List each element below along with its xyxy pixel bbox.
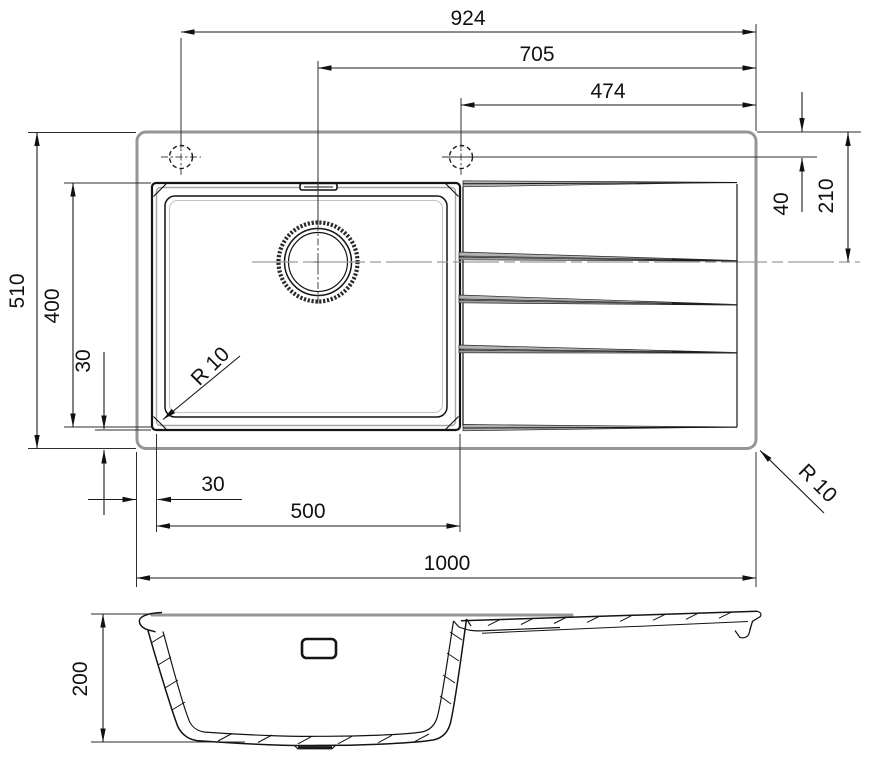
dim-1000-label: 1000 [424,552,471,575]
dim-40-label: 40 [770,192,793,215]
dim-210-label: 210 [815,178,838,213]
dim-400: 400 [41,183,73,427]
dim-1000: 1000 [137,552,757,578]
radius-callout-corner-label: R 10 [794,460,842,508]
dim-30-bottom: 30 [88,473,242,500]
dim-474: 474 [461,80,756,105]
dim-924: 924 [181,7,756,32]
dim-510: 510 [6,133,37,449]
section-hatch-marks [151,612,731,744]
dim-30-left: 30 [72,349,104,515]
dim-200-label: 200 [69,661,92,696]
section-view [139,611,761,749]
drawing-canvas: R 10 R 10 924 705 474 [0,0,877,764]
dim-474-label: 474 [590,80,625,103]
dim-40: 40 [770,92,802,216]
dim-705-label: 705 [519,43,554,66]
top-view: R 10 R 10 [137,61,860,513]
radius-callout-corner: R 10 [760,451,841,514]
dim-200: 200 [69,614,103,742]
dim-705: 705 [318,43,756,68]
dim-400-label: 400 [41,288,64,323]
dim-500: 500 [157,500,461,526]
dim-30-left-label: 30 [72,349,95,372]
dim-924-label: 924 [450,7,485,30]
dim-30-bottom-label: 30 [201,473,224,496]
sink-technical-drawing: R 10 R 10 924 705 474 [0,0,877,764]
dim-510-label: 510 [6,273,29,308]
section-bowl-profile [139,613,466,749]
section-overflow-slot [302,639,336,658]
dim-500-label: 500 [290,500,325,523]
dim-210: 210 [815,133,848,263]
